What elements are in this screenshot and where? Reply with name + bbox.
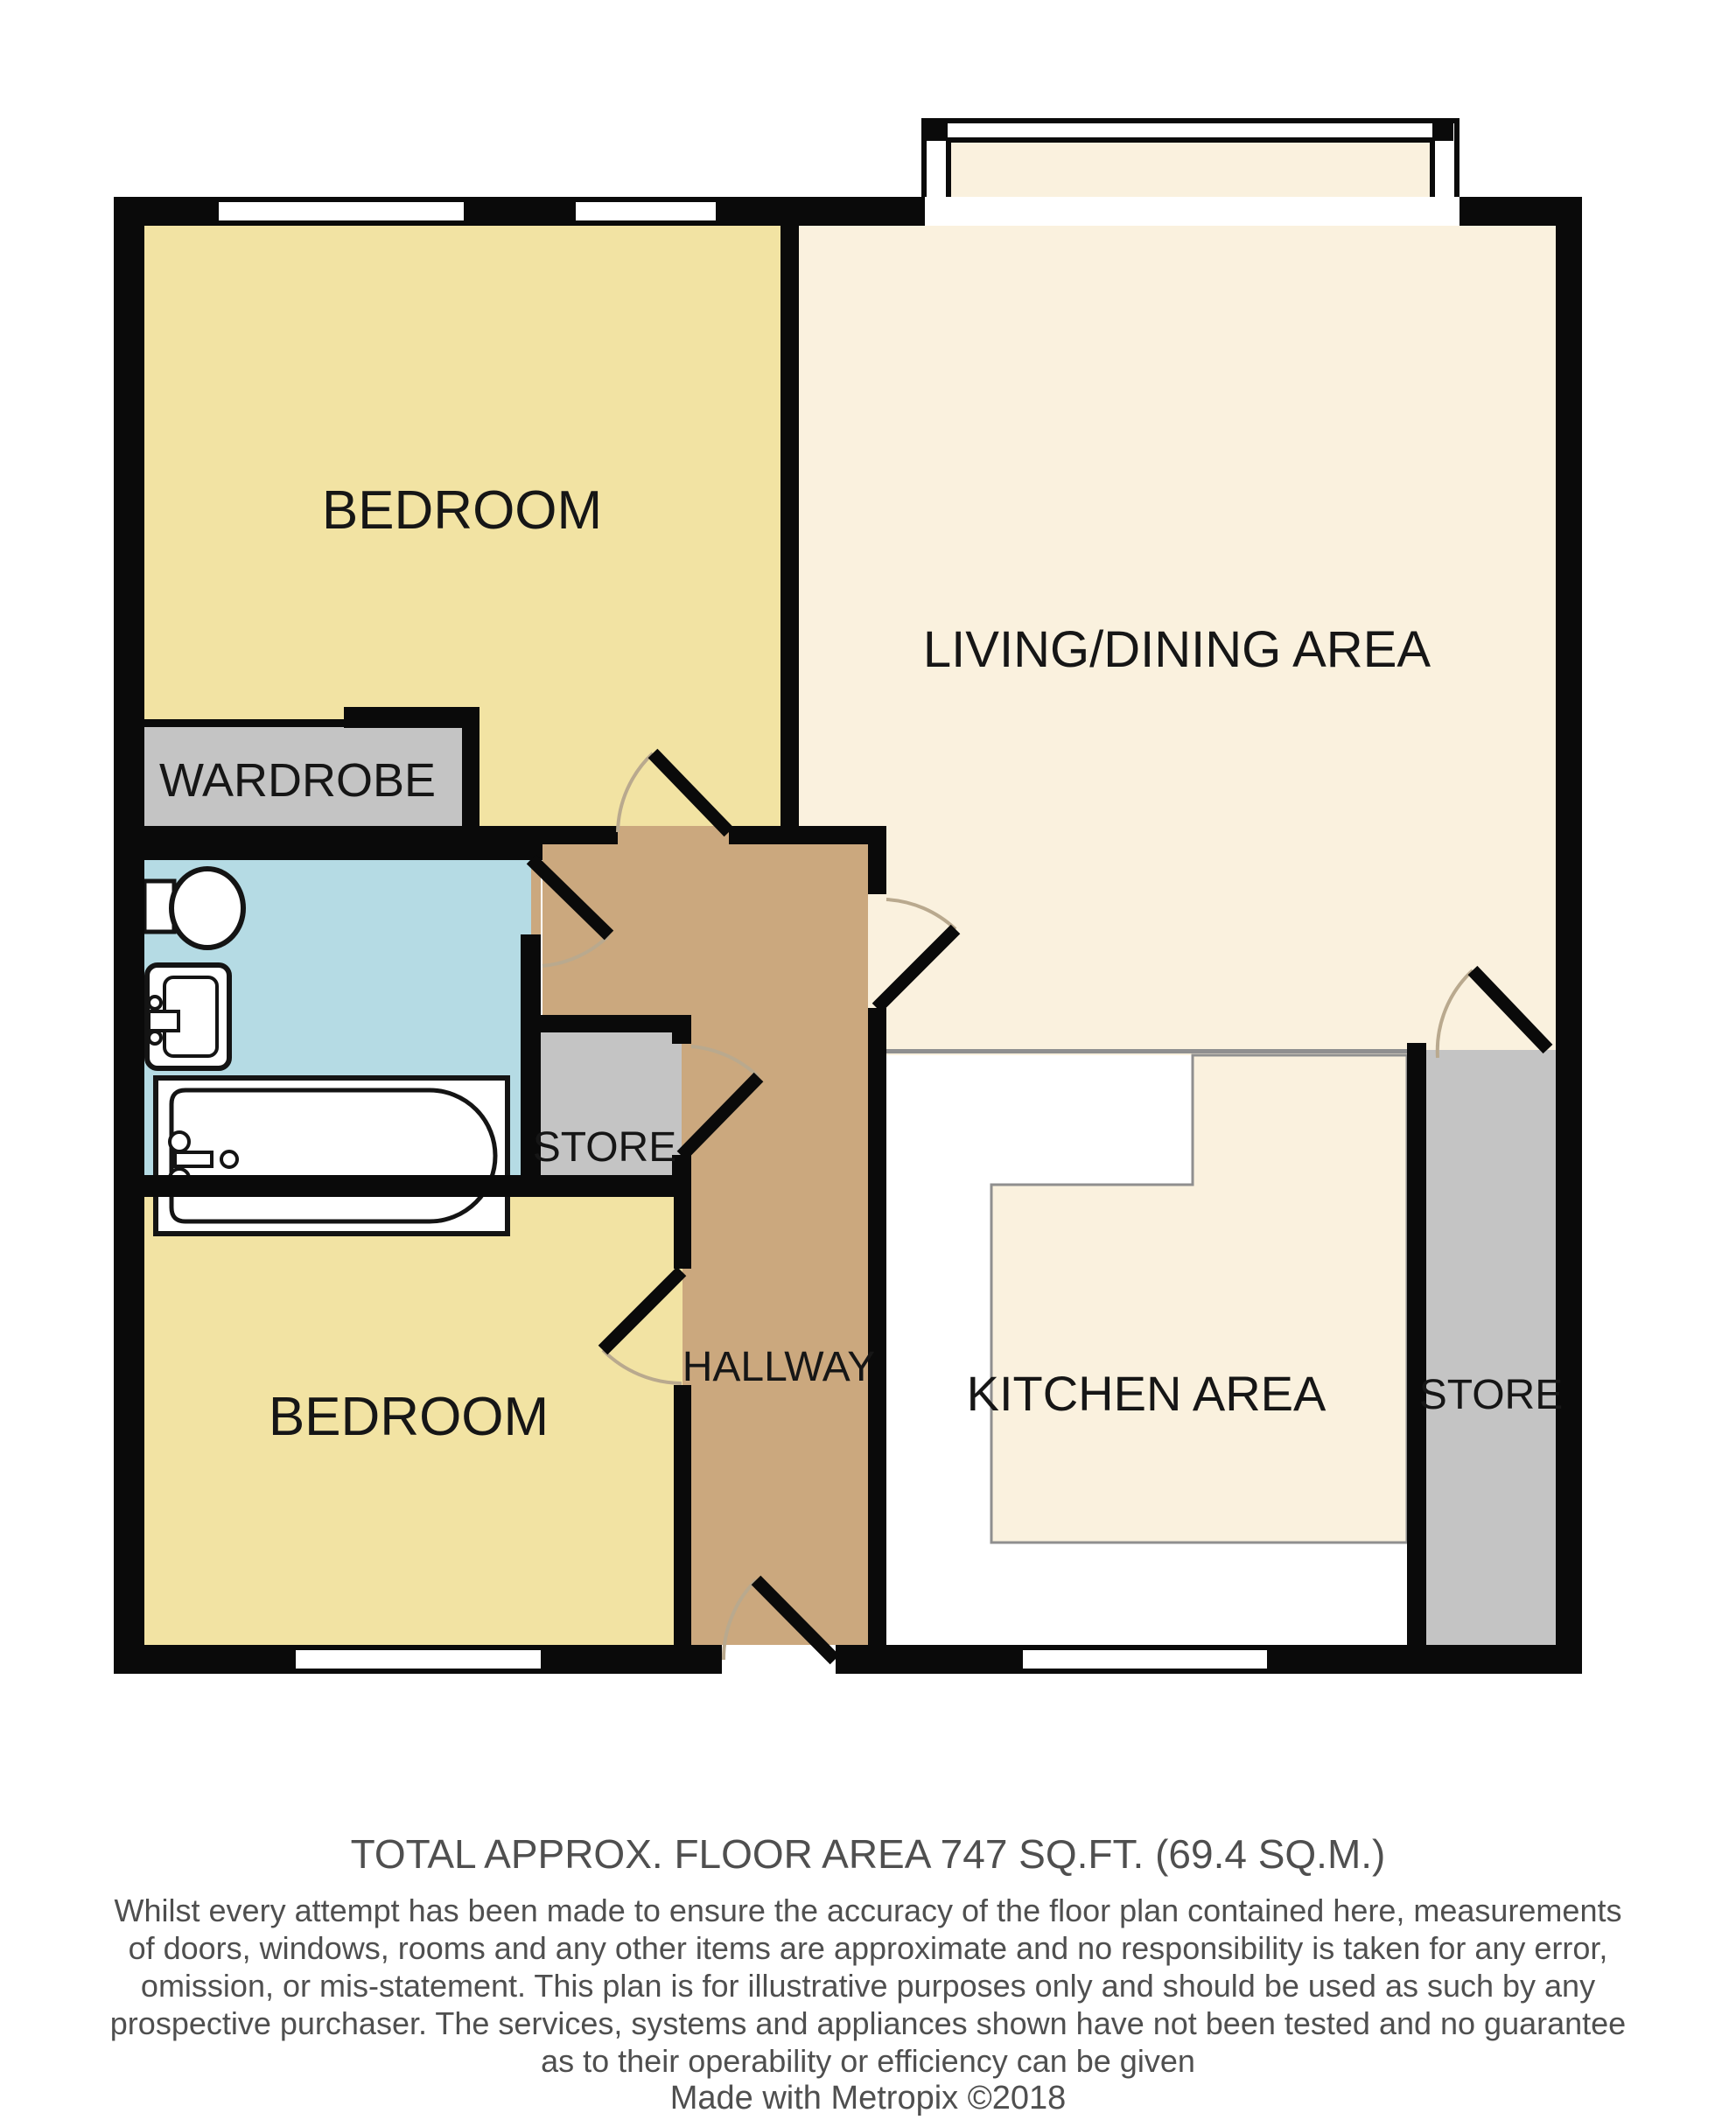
bath-spout bbox=[175, 1152, 212, 1166]
bay-frame bbox=[921, 118, 1459, 123]
wall-bottom bbox=[541, 1645, 722, 1674]
window-frame bbox=[1023, 1645, 1267, 1650]
wall-top bbox=[716, 197, 925, 226]
toilet-bowl bbox=[171, 869, 243, 948]
bay-corner bbox=[927, 120, 948, 141]
threshold bbox=[868, 894, 886, 1008]
wall-bedroom2-top bbox=[114, 1175, 691, 1197]
window bbox=[219, 197, 464, 226]
wall-bedroom2-right bbox=[674, 1197, 691, 1269]
wall-bath-top bbox=[144, 826, 542, 860]
living-dining-floor bbox=[799, 226, 1556, 826]
bath-tap bbox=[170, 1132, 189, 1151]
sink-tap bbox=[149, 997, 161, 1009]
bay-frame bbox=[946, 137, 951, 197]
wall-left bbox=[114, 197, 144, 1674]
bay-corner bbox=[1432, 120, 1453, 141]
disclaimer-line: Whilst every attempt has been made to en… bbox=[115, 1893, 1622, 1928]
bath-tub bbox=[171, 1090, 495, 1221]
wall-bath-right bbox=[521, 826, 541, 857]
wall-bedroom1-right bbox=[780, 226, 799, 826]
window-frame bbox=[576, 197, 716, 202]
wall-bottom bbox=[1267, 1645, 1582, 1674]
disclaimer-line: omission, or mis-statement. This plan is… bbox=[141, 1968, 1595, 2004]
wall-wardrobe-top-thin bbox=[144, 719, 344, 727]
bedroom-bottom-label: BEDROOM bbox=[269, 1387, 549, 1447]
living-dining-label: LIVING/DINING AREA bbox=[923, 621, 1431, 678]
window-frame bbox=[576, 220, 716, 226]
window-frame bbox=[296, 1669, 541, 1674]
sink-tap bbox=[149, 1032, 161, 1044]
window bbox=[576, 197, 716, 226]
bay-glazing bbox=[951, 137, 1430, 143]
bay-frame bbox=[1454, 118, 1459, 197]
bedroom-top-label: BEDROOM bbox=[322, 480, 602, 541]
wall-right bbox=[1556, 197, 1582, 1674]
window bbox=[1023, 1645, 1267, 1674]
living-dining-floor-lower bbox=[886, 826, 1556, 1055]
disclaimer-line: as to their operability or efficiency ca… bbox=[541, 2043, 1195, 2079]
wall-wardrobe-top bbox=[344, 707, 479, 728]
footer: TOTAL APPROX. FLOOR AREA 747 SQ.FT. (69.… bbox=[110, 1831, 1626, 2117]
wall-living-left bbox=[868, 826, 886, 894]
window-frame bbox=[219, 220, 464, 226]
bathtub bbox=[156, 1078, 507, 1234]
threshold bbox=[618, 826, 729, 844]
floor-area-title: TOTAL APPROX. FLOOR AREA 747 SQ.FT. (69.… bbox=[351, 1831, 1386, 1877]
threshold bbox=[521, 857, 531, 934]
metropix-credit: Made with Metropix ©2018 bbox=[670, 2080, 1067, 2117]
wall-wardrobe-right bbox=[462, 710, 479, 826]
disclaimer-line: of doors, windows, rooms and any other i… bbox=[129, 1930, 1608, 1966]
wall-top bbox=[1459, 197, 1582, 226]
floorplan-page: BEDROOM LIVING/DINING AREA WARDROBE STOR… bbox=[0, 0, 1736, 2120]
wall-store-right-left bbox=[1407, 1043, 1426, 1645]
store-right-label: STORE bbox=[1419, 1372, 1563, 1418]
store-middle-label: STORE bbox=[533, 1124, 676, 1171]
window-frame bbox=[296, 1645, 541, 1650]
wall-top bbox=[464, 197, 576, 226]
wall-kitchen-left bbox=[868, 1008, 886, 1645]
window-frame bbox=[1023, 1669, 1267, 1674]
wall-bottom bbox=[836, 1645, 1023, 1674]
wardrobe-label: WARDROBE bbox=[159, 754, 436, 807]
wall-bottom bbox=[114, 1645, 296, 1674]
floorplan-canvas: BEDROOM LIVING/DINING AREA WARDROBE STOR… bbox=[0, 0, 1736, 2120]
wall-hall-top bbox=[729, 826, 886, 844]
bay-floor bbox=[951, 143, 1430, 197]
sink-spout bbox=[149, 1011, 178, 1031]
sink bbox=[147, 965, 229, 1068]
bath-drain bbox=[221, 1151, 237, 1167]
bay-frame bbox=[921, 118, 927, 197]
disclaimer-line: prospective purchaser. The services, sys… bbox=[110, 2005, 1626, 2041]
bay-frame bbox=[1430, 137, 1435, 197]
kitchen-label: KITCHEN AREA bbox=[967, 1366, 1326, 1421]
wall-bedroom2-right bbox=[674, 1385, 691, 1645]
window bbox=[296, 1645, 541, 1674]
wall-top bbox=[114, 197, 219, 226]
wall-store-right bbox=[672, 1015, 691, 1044]
window-frame bbox=[219, 197, 464, 202]
wall-store-top bbox=[521, 1015, 691, 1032]
store-right-floor bbox=[1426, 1050, 1556, 1645]
hallway-label: HALLWAY bbox=[682, 1344, 876, 1390]
kitchen-living-boundary bbox=[886, 1049, 1407, 1053]
bay-window bbox=[921, 118, 1459, 197]
